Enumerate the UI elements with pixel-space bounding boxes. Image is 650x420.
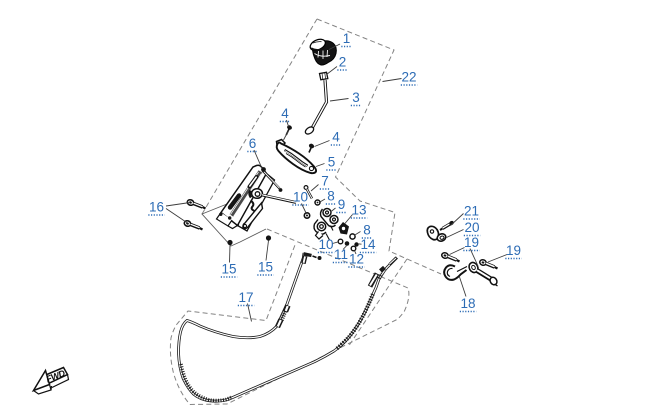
svg-text:7: 7 (321, 174, 329, 189)
svg-text:17: 17 (238, 290, 253, 305)
svg-text:14: 14 (360, 237, 376, 252)
svg-text:8: 8 (327, 189, 335, 204)
svg-text:12: 12 (349, 252, 364, 267)
svg-text:4: 4 (281, 106, 289, 121)
svg-text:19: 19 (464, 235, 479, 250)
svg-text:22: 22 (401, 70, 416, 85)
svg-text:20: 20 (464, 220, 479, 235)
svg-text:11: 11 (334, 247, 348, 262)
svg-text:2: 2 (339, 55, 347, 70)
svg-text:4: 4 (332, 130, 340, 145)
svg-text:5: 5 (328, 155, 336, 170)
svg-text:15: 15 (221, 262, 236, 277)
svg-text:9: 9 (338, 197, 346, 212)
svg-text:1: 1 (343, 31, 351, 46)
svg-text:10: 10 (293, 190, 308, 205)
svg-text:3: 3 (352, 90, 360, 105)
svg-text:15: 15 (258, 260, 273, 275)
svg-text:21: 21 (464, 204, 479, 219)
svg-text:18: 18 (460, 296, 475, 311)
svg-text:13: 13 (351, 203, 366, 218)
svg-text:16: 16 (149, 200, 164, 215)
svg-text:6: 6 (249, 136, 257, 151)
svg-text:8: 8 (363, 223, 371, 238)
svg-text:10: 10 (318, 237, 333, 252)
svg-text:19: 19 (506, 243, 521, 258)
